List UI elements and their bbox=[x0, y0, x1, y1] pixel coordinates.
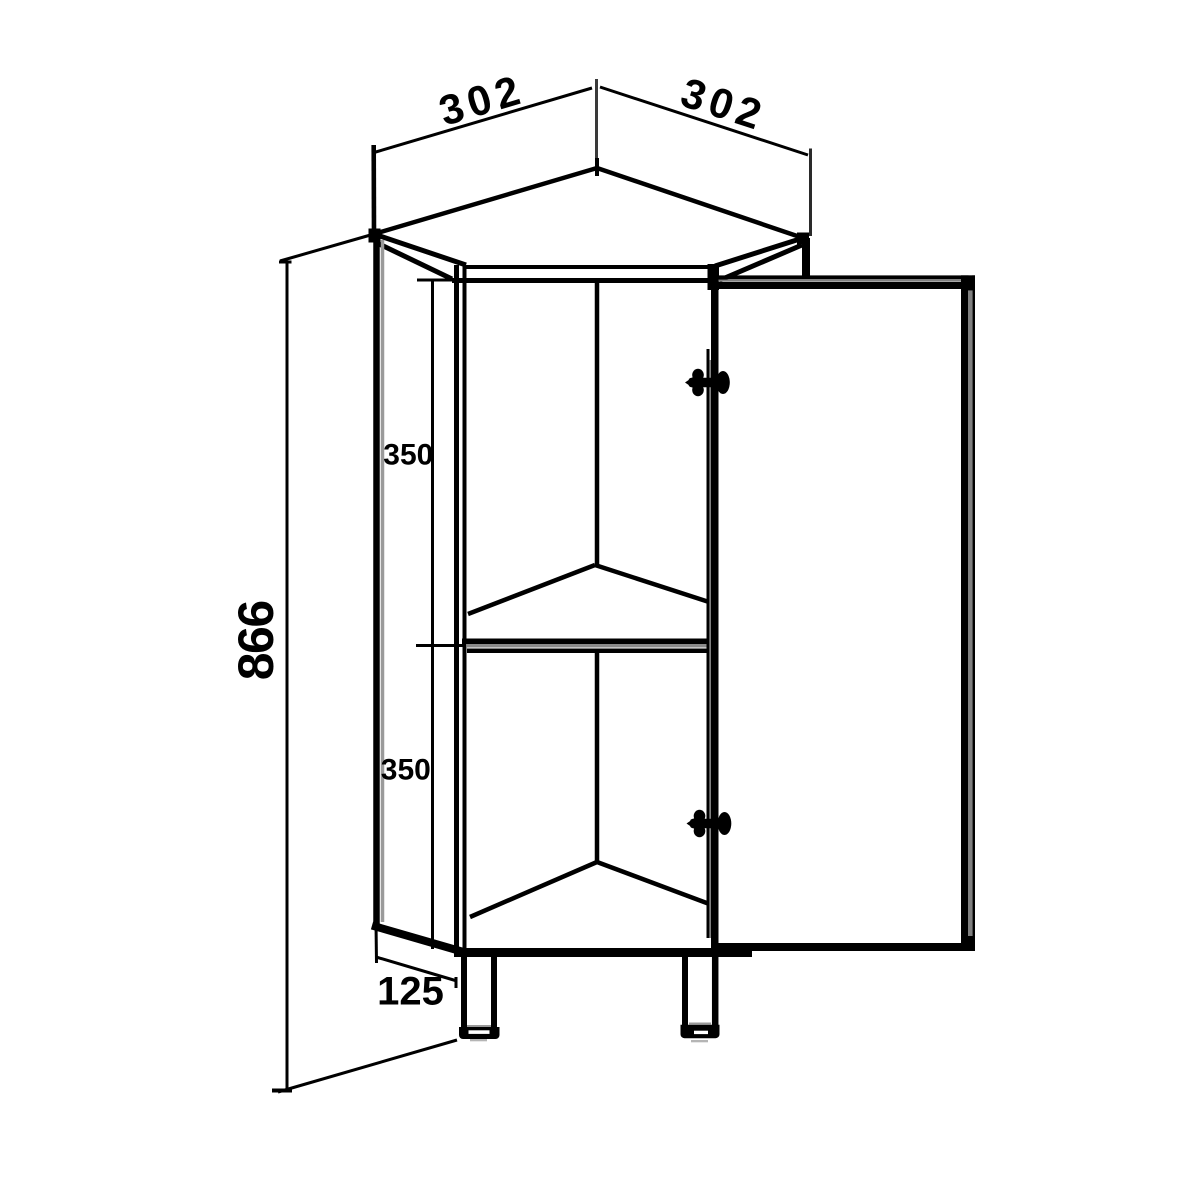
svg-text:125: 125 bbox=[377, 970, 444, 1014]
svg-text:350: 350 bbox=[383, 439, 433, 472]
svg-text:866: 866 bbox=[228, 601, 284, 680]
svg-text:350: 350 bbox=[381, 754, 431, 787]
